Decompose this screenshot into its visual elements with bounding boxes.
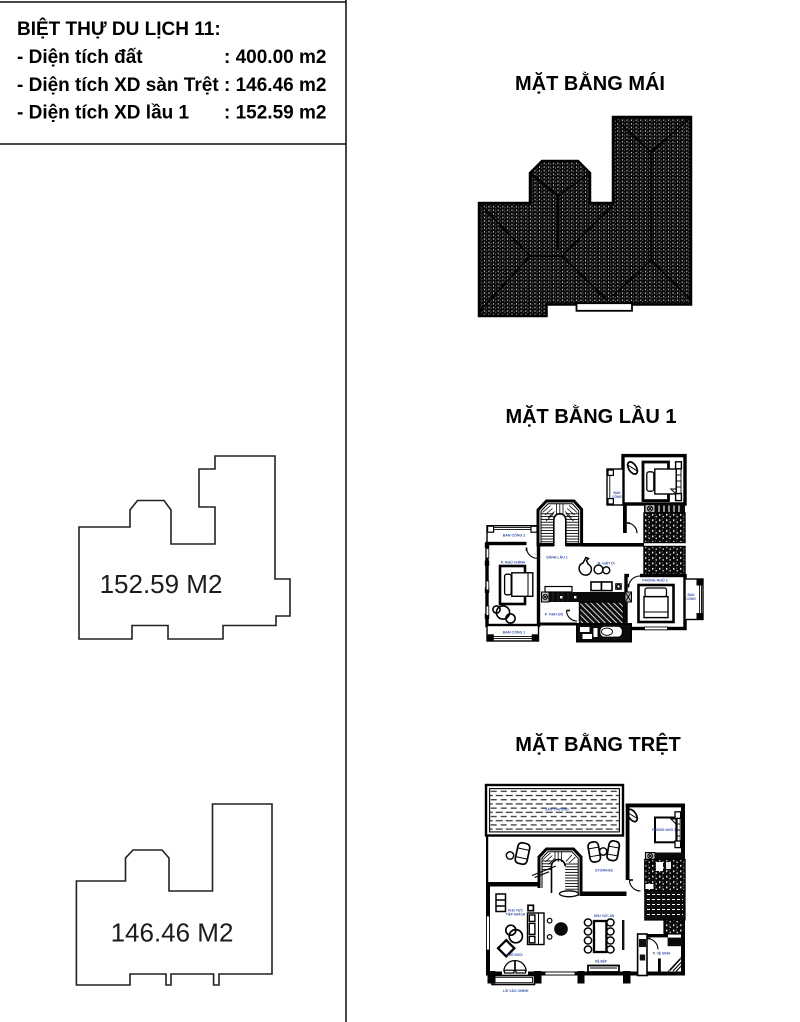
svg-text:: 400.00 m2: : 400.00 m2 <box>224 47 326 68</box>
svg-text:KỆ BẾP: KỆ BẾP <box>595 959 608 964</box>
svg-text:SẢNH LẦU 1: SẢNH LẦU 1 <box>546 555 568 560</box>
svg-text:MẶT BẰNG MÁI: MẶT BẰNG MÁI <box>515 71 665 95</box>
svg-text:MẶT BẰNG TRỆT: MẶT BẰNG TRỆT <box>515 732 681 756</box>
svg-text:KHU VỰC: KHU VỰC <box>508 909 524 913</box>
svg-text:- Diện tích XD lầu 1: - Diện tích XD lầu 1 <box>17 103 190 124</box>
svg-text:- Diện tích đất: - Diện tích đất <box>17 47 143 68</box>
svg-text:BAN CÔNG 1: BAN CÔNG 1 <box>503 630 526 635</box>
svg-text:BAN: BAN <box>614 491 622 495</box>
svg-text:TIẾP KHÁCH: TIẾP KHÁCH <box>506 911 526 916</box>
svg-text:- Diện tích XD sàn Trệt: - Diện tích XD sàn Trệt <box>17 75 219 96</box>
svg-text:146.46 M2: 146.46 M2 <box>111 918 234 948</box>
svg-text:BAN CÔNG 2: BAN CÔNG 2 <box>503 533 526 538</box>
svg-text:MẶT BẰNG LẦU 1: MẶT BẰNG LẦU 1 <box>505 404 676 428</box>
svg-text:KHU VỰC ĂN: KHU VỰC ĂN <box>594 913 615 918</box>
svg-text:PHÒNG NGỦ 1: PHÒNG NGỦ 1 <box>652 827 676 832</box>
svg-text:152.59 M2: 152.59 M2 <box>100 569 223 599</box>
svg-text:: 146.46 m2: : 146.46 m2 <box>224 75 326 96</box>
svg-text:BIỆT THỰ DU LỊCH 11:: BIỆT THỰ DU LỊCH 11: <box>17 18 221 40</box>
svg-text:PHÒNG NGỦ 2: PHÒNG NGỦ 2 <box>642 578 667 583</box>
svg-text:P. NGỦ CHÍNH: P. NGỦ CHÍNH <box>501 560 526 565</box>
svg-text:CÔNG: CÔNG <box>612 494 622 499</box>
svg-text:CÔNG: CÔNG <box>686 596 696 601</box>
svg-text:P. VỆ SINH: P. VỆ SINH <box>653 951 671 956</box>
svg-text:LỐI VÀO CHÍNH: LỐI VÀO CHÍNH <box>503 988 529 993</box>
svg-text:GHẾ NGỒI: GHẾ NGỒI <box>507 952 523 957</box>
svg-text:STORAGE: STORAGE <box>595 869 613 873</box>
svg-text:P. THAY ĐỒ: P. THAY ĐỒ <box>545 612 564 617</box>
svg-text:SÂN THƯỢNG: SÂN THƯỢNG <box>545 807 569 812</box>
svg-text:BAN: BAN <box>688 593 696 597</box>
svg-text:: 152.59 m2: : 152.59 m2 <box>224 103 326 124</box>
